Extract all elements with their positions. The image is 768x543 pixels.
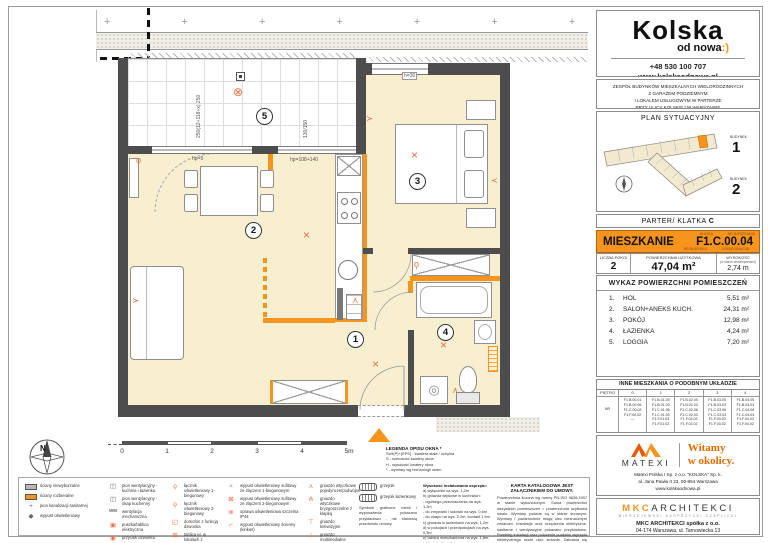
room-number-salon: 2 bbox=[245, 222, 262, 239]
room-no: 4. bbox=[609, 329, 623, 336]
legend-item: ϙłącznik oświetleniowy 1-biegunowy bbox=[169, 483, 221, 498]
unit-tag: KLATKA bbox=[700, 232, 713, 236]
chair bbox=[260, 194, 274, 212]
room-area-row: 1.HOL5,51 m² bbox=[597, 291, 759, 302]
brand-box: Kolska od nowa:) +48 530 100 707 www.kol… bbox=[596, 10, 760, 77]
scale-tick-label: 0 bbox=[120, 448, 124, 455]
ceiling-outlet-icon: × bbox=[440, 339, 447, 351]
legend-item: ϙłącznik oświetleniowy 2-biegunowy bbox=[169, 501, 221, 516]
vent-hood-icon: ◫ bbox=[107, 496, 119, 503]
room-number-label: 4 bbox=[443, 327, 448, 338]
unit-codes: F1.B.00.01 F1.B.00.06 F1.C.00.03 F1.F.00… bbox=[619, 397, 646, 422]
legend-column-radiators: grzejnik grzejnik łazienkowy Symbole gra… bbox=[359, 483, 417, 526]
mkc-address: 04-174 Warszawa, ul. Tarnowiecka 13 bbox=[597, 528, 759, 535]
kitchen-stove bbox=[337, 192, 361, 224]
intercom-icon: ◱ bbox=[169, 519, 181, 526]
scale-segment bbox=[302, 441, 347, 445]
divider bbox=[679, 443, 680, 467]
toilet-tank bbox=[456, 392, 480, 404]
project-description: ZESPÓŁ BUDYNKÓW MIESZKALNYCH WIELORODZIN… bbox=[597, 80, 759, 109]
dining-table bbox=[200, 166, 258, 216]
legend-label: pion wentylacyjny - okap kuchenny bbox=[122, 496, 165, 506]
legend-label: pion wentylacyjny - kuchnia i łazienka bbox=[122, 483, 165, 493]
smile-icon: :) bbox=[722, 42, 729, 54]
mkc-logo-architekci: ARCHITEKCI bbox=[651, 503, 734, 514]
room-area: 12,98 m² bbox=[723, 318, 749, 325]
compass-north-label: N bbox=[40, 444, 46, 453]
room-number-label: 3 bbox=[415, 176, 420, 187]
hall-wardrobe bbox=[270, 380, 348, 404]
legend-item: ⊞tablica el. w lokalach z gniazdem bbox=[169, 532, 221, 543]
legend-item: +pion kanalizacji sanitarnej bbox=[25, 503, 101, 510]
ceiling-outlet-2p-icon: ⊠ bbox=[225, 496, 237, 503]
legend-label: ściany rozbieralne bbox=[40, 493, 74, 498]
legend-item: ◱domofon z funkcją dzwonka bbox=[169, 519, 221, 529]
kolska-logo-subtitle: od nowa:) bbox=[597, 43, 759, 54]
room-number-label: 5 bbox=[262, 111, 267, 122]
floor-bar: PARTER/ KLATKA C bbox=[596, 214, 760, 228]
scale-segment bbox=[108, 441, 122, 445]
window-legend-lines: SxH(P)+(EPS) - kwatera stała / uchylna S… bbox=[386, 451, 496, 472]
unit-codes: F1.B.03.05 F1.B.03.03 F1.C.03.06 F1.C.03… bbox=[704, 397, 731, 427]
room-no: 1. bbox=[609, 296, 623, 303]
floor-header: PIĘTRO bbox=[597, 390, 618, 397]
sealed-lamp-icon: ⊗ bbox=[233, 86, 243, 98]
wall-pier bbox=[252, 146, 278, 154]
stat-rooms: LICZBA POKOI 2 bbox=[597, 254, 631, 273]
legend-column-sockets: ⋏gniazdo wtyczkowe pojedyncze/podwójne ⋔… bbox=[305, 483, 353, 543]
legend-label: grzejnik bbox=[380, 483, 394, 488]
legend-label: gniazdo multimedialne bbox=[320, 532, 353, 542]
chair bbox=[184, 194, 198, 212]
room-no: 2. bbox=[609, 307, 623, 314]
similar-col: 2 F1.B.02.05 F1.B.02.03 F1.C.02.06 F1.C.… bbox=[675, 390, 703, 433]
wall-swatch-orange-icon bbox=[25, 494, 37, 500]
matexi-name: MATEXI bbox=[622, 458, 671, 468]
legend-item: ⊗oprawa oświetleniowa szczelna IP44 bbox=[225, 509, 299, 519]
splash-socket-icon: ⋔ bbox=[305, 496, 317, 503]
room-area-row: 2.SALON+ANEKS KUCH.24,31 m² bbox=[597, 302, 759, 313]
vent-riser-icon: ◫ bbox=[107, 483, 119, 490]
floor-header: 3 bbox=[704, 390, 731, 397]
chair bbox=[184, 170, 198, 188]
unit-codes: F1.B.01.05 F1.B.01.03 F1.C.01.06 F1.C.01… bbox=[647, 397, 674, 427]
legend-item: ◫pion wentylacyjny - kuchnia i łazienka bbox=[107, 483, 165, 493]
room-area: 24,31 m² bbox=[723, 307, 749, 314]
socket-icon: ⋏ bbox=[131, 297, 140, 304]
legend-label: pion kanalizacji sanitarnej bbox=[40, 503, 88, 508]
legend-item: ⊥gniazdo multimedialne bbox=[305, 532, 353, 542]
scale-tick-label: 2 bbox=[210, 448, 214, 455]
light-switch-icon: ϙ bbox=[414, 260, 419, 269]
legend-column-vents: ◫pion wentylacyjny - kuchnia i łazienka … bbox=[107, 483, 165, 543]
radiator-bathroom bbox=[488, 346, 498, 372]
switch-2pole-icon: ϙ bbox=[169, 501, 181, 508]
scale-tick-label: 3 bbox=[255, 448, 259, 455]
window-code-legend: LEGENDA OPISU OKNA * SxH(P)+(EPS) - kwat… bbox=[386, 446, 496, 472]
legend-item: grzejnik łazienkowy bbox=[359, 494, 417, 502]
wall-lamp-icon: ⌐ bbox=[225, 522, 237, 529]
unit-stats: LICZBA POKOI 2 POWIERZCHNIA UŻYTKOWA 47,… bbox=[596, 253, 760, 274]
room-number-loggia: 5 bbox=[256, 108, 273, 125]
tv-socket-icon: ⊤ bbox=[305, 519, 317, 526]
legend-item: ⊤gniazdo telewizyjne bbox=[305, 519, 353, 529]
window-bedroom bbox=[372, 63, 428, 75]
legend-label: wypust oświetleniowy ścienny (kinkiet) bbox=[240, 522, 299, 532]
floor-label: PARTER/ KLATKA bbox=[642, 218, 707, 225]
witamy-tagline: Witamy w okolicy. bbox=[688, 442, 734, 466]
ceiling-outlet-icon: × bbox=[303, 229, 310, 241]
wall-bath-left bbox=[408, 330, 414, 405]
legend-column-switches: ϙłącznik oświetleniowy 1-biegunowy ϙłącz… bbox=[169, 483, 221, 543]
budynek2-number: 2 bbox=[732, 181, 740, 198]
legend-label: wypust oświetleniowy sufitowy ze złączem… bbox=[240, 496, 299, 506]
switch-1pole-icon: ϙ bbox=[169, 483, 181, 490]
mkc-box: MKCARCHITEKCI MIERZEJEWSKI KASPRZYCKI CZ… bbox=[596, 498, 760, 535]
scale-bar: 0 1 2 3 4 5m bbox=[108, 441, 368, 459]
ceiling-outlet-1p-icon: × bbox=[225, 483, 237, 490]
exterior-paving bbox=[436, 417, 540, 432]
scale-tick-label: 1 bbox=[165, 448, 169, 455]
wall-left bbox=[118, 58, 128, 417]
room-area: 5,51 m² bbox=[727, 296, 749, 303]
room-area: 7,20 m² bbox=[727, 340, 749, 347]
legend-column-walls: ściany niewyburzalne ściany rozbieralne … bbox=[25, 483, 101, 523]
wall-swatch-gray-icon bbox=[25, 484, 37, 490]
similar-col-label: PIĘTRO NR bbox=[597, 390, 619, 433]
furniture-disclaimer: Symbole graficzne mebli i wyposażenia po… bbox=[359, 505, 417, 526]
legend-item: ⊠wypust oświetleniowy sufitowy ze złącze… bbox=[225, 496, 299, 506]
wall-loggia-right bbox=[356, 58, 366, 154]
scale-segment bbox=[122, 441, 167, 445]
window-sill-label: hp=108+140 bbox=[290, 157, 318, 163]
light-outlet-icon: ◆ bbox=[25, 513, 37, 520]
wall-bedroom-bottom bbox=[363, 248, 373, 254]
legend-item: ⋏gniazdo wtyczkowe pojedyncze/podwójne bbox=[305, 483, 353, 493]
kitchen-sink bbox=[337, 156, 361, 176]
legend-label: ściany niewyburzalne bbox=[40, 483, 80, 488]
room-number-label: 2 bbox=[251, 225, 256, 236]
legend-label: grzejnik łazienkowy bbox=[380, 494, 416, 499]
wall-hol-dashed-orange bbox=[263, 258, 267, 318]
panel-socket-icon: ⊞ bbox=[169, 532, 181, 539]
site-plan-title: PLAN SYTUACYJNY bbox=[597, 112, 759, 122]
pillow bbox=[464, 130, 484, 158]
room-areas-box: WYKAZ POWIERZCHNI POMIESZCZEŃ 1.HOL5,51 … bbox=[596, 275, 760, 377]
matexi-box: MATEXI Witamy w okolicy. Matexi Polska I… bbox=[596, 435, 760, 496]
legend-item: ⋔gniazdo wtyczkowe bryzgoszczelne z klap… bbox=[305, 496, 353, 516]
floor-plan: + + + + + + + + + + + + bbox=[0, 0, 596, 543]
legend-label: łącznik oświetleniowy 2-biegunowy bbox=[184, 501, 221, 516]
room-number-hol: 1 bbox=[347, 331, 364, 348]
legend-label: przycisk dzwonka bbox=[122, 535, 155, 540]
window-salon-small bbox=[278, 146, 356, 154]
legend-item: ściany niewyburzalne bbox=[25, 483, 101, 490]
ip44-lamp-icon: ⊗ bbox=[225, 509, 237, 516]
ceiling-outlet-icon: × bbox=[372, 358, 379, 370]
window-height-label: h=30 bbox=[402, 72, 417, 80]
legend-item: ◉przycisk dzwonka bbox=[107, 535, 165, 542]
legend-label: domofon z funkcją dzwonka bbox=[184, 519, 221, 529]
stove-burner-icon bbox=[341, 212, 348, 219]
budynek1-number: 1 bbox=[732, 139, 740, 156]
electric-box-icon: ▣ bbox=[107, 522, 119, 529]
unit-header: MIESZKANIE F1.C.00.04 KLATKA NR MIESZKAN… bbox=[596, 230, 760, 253]
room-areas-title: WYKAZ POWIERZCHNI POMIESZCZEŃ bbox=[597, 276, 759, 291]
window-sill-label: hp=5 bbox=[192, 156, 203, 162]
light-switch-icon: ϙ bbox=[136, 156, 141, 165]
chair bbox=[260, 170, 274, 188]
kitchen-basin bbox=[338, 260, 358, 280]
stat-height: WYSOKOŚĆ (w stanie deweloperskim) 2,74 m bbox=[717, 254, 759, 273]
window-salon-large bbox=[152, 146, 252, 154]
socket-icon: ⋏ bbox=[452, 386, 459, 395]
divider bbox=[611, 58, 745, 59]
bedroom-wardrobe bbox=[412, 254, 490, 276]
project-description-box: ZESPÓŁ BUDYNKÓW MIESZKALNYCH WIELORODZIN… bbox=[596, 79, 760, 109]
unit-codes: F1.B.02.05 F1.B.02.03 F1.C.02.06 F1.C.02… bbox=[675, 397, 702, 427]
nightstand bbox=[466, 208, 496, 228]
legend-label: tablica el. w lokalach z gniazdem bbox=[184, 532, 221, 543]
bathroom-sink-basin bbox=[478, 324, 492, 340]
heights-lines: a) wyłączniki na wys. 1,2m b) gniazda wt… bbox=[423, 488, 491, 543]
site-plan-box: PLAN SYTUACYJNY BUDYNEK 1 BUDYNEK 2 bbox=[596, 111, 760, 212]
multimedia-socket-icon: ⊥ bbox=[305, 532, 317, 539]
wall-hol-orange bbox=[263, 318, 335, 323]
floor-header: 1 bbox=[647, 390, 674, 397]
matexi-m-icon bbox=[629, 441, 663, 457]
wall-bath-left-orange bbox=[408, 281, 413, 293]
bathtub-inner bbox=[420, 286, 488, 314]
stove-burner-icon bbox=[341, 198, 348, 205]
legend-column-outlets: ×wypust oświetleniowy sufitowy ze złącze… bbox=[225, 483, 299, 535]
unit-label: MIESZKANIE bbox=[603, 236, 674, 248]
entrance-door-gap bbox=[358, 405, 404, 417]
floor-header: 2 bbox=[675, 390, 702, 397]
room-name: SALON+ANEKS KUCH. bbox=[623, 307, 723, 314]
socket-icon: ⋏ bbox=[352, 296, 359, 305]
mkc-logo: MKC bbox=[622, 503, 651, 514]
room-number-pokoj: 3 bbox=[409, 173, 426, 190]
scale-segment bbox=[257, 441, 302, 445]
scale-tick-label: 5m bbox=[344, 448, 353, 455]
stove-burner-icon bbox=[351, 212, 358, 219]
terrain-grass-band: + + + + + + + + + + + + bbox=[96, 12, 588, 33]
socket-icon: ⋏ bbox=[490, 177, 499, 184]
phone-number: +48 530 100 707 bbox=[597, 62, 759, 72]
site-plan-map: BUDYNEK 1 BUDYNEK 2 bbox=[598, 122, 758, 208]
room-no: 5. bbox=[609, 340, 623, 347]
unit-code: F1.C.00.04 bbox=[696, 236, 753, 248]
wall-bottom bbox=[118, 405, 510, 417]
terrain-gravel-band bbox=[96, 33, 588, 50]
kolska-logo: Kolska bbox=[597, 17, 759, 43]
similar-col: 1 F1.B.01.05 F1.B.01.03 F1.C.01.06 F1.C.… bbox=[647, 390, 675, 433]
dimension-label: 250(12+118+x) 250 bbox=[196, 95, 202, 138]
power-socket-icon: ⋏ bbox=[305, 483, 317, 490]
unit-tag: NR BUDYNKU bbox=[684, 247, 707, 251]
wall-kitchen-orange bbox=[363, 154, 367, 322]
dimension-label: 130/150 bbox=[303, 120, 309, 138]
matexi-logo: MATEXI bbox=[622, 441, 671, 468]
scale-segment bbox=[212, 441, 257, 445]
legend-label: wentylacja mechaniczna bbox=[122, 509, 165, 519]
legend-item: ściany rozbieralne bbox=[25, 493, 101, 500]
scale-tick-label: 4 bbox=[300, 448, 304, 455]
similar-col: 4 F1.B.04.05 F1.B.04.03 F1.C.04.06 F1.C.… bbox=[732, 390, 759, 433]
wall-bath-top-orange bbox=[410, 276, 500, 281]
install-heights-note: Wysokość instalowania osprzętu: a) wyłąc… bbox=[423, 483, 491, 543]
legend-strip: ściany niewyburzalne ściany rozbieralne … bbox=[18, 477, 590, 536]
floor-header: 4 bbox=[732, 390, 759, 397]
legend-label: gniazdo wtyczkowe pojedyncze/podwójne bbox=[320, 483, 360, 493]
compass-rose: N bbox=[30, 440, 64, 474]
catalog-card-note: KARTA KATALOGOWA JEST ZAŁĄCZNIKIEM DO UM… bbox=[497, 483, 587, 543]
legend-item: WMwentylacja mechaniczna bbox=[107, 509, 165, 519]
toilet-bowl bbox=[459, 366, 477, 393]
room-number-label: 1 bbox=[353, 334, 358, 345]
stat-area: POWIERZCHNIA UŻYTKOWA 47,04 m² bbox=[631, 254, 717, 273]
room-area-row: 4.ŁAZIENKA4,24 m² bbox=[597, 324, 759, 335]
legend-label: gniazdo telewizyjne bbox=[320, 519, 353, 529]
room-name: LOGGIA bbox=[623, 340, 727, 347]
entrance-arrow-icon bbox=[368, 428, 390, 442]
kitchen-tall-unit bbox=[337, 288, 343, 320]
mkc-company: MKC ARCHITEKCI spółka z o.o. bbox=[597, 520, 759, 528]
legend-item: grzejnik bbox=[359, 483, 417, 491]
similar-units-title: INNE MIESZKANIA O PODOBNYM UKŁADZIE bbox=[597, 380, 759, 390]
room-no: 3. bbox=[609, 318, 623, 325]
stat-value: 2 bbox=[598, 261, 629, 272]
sofa bbox=[130, 266, 184, 360]
similar-units-box: INNE MIESZKANIA O PODOBNYM UKŁADZIE PIĘT… bbox=[596, 379, 760, 433]
boundary-dashed-line bbox=[147, 8, 150, 59]
room-name: ŁAZIENKA bbox=[623, 329, 727, 336]
legend-item: ◫pion wentylacyjny - okap kuchenny bbox=[107, 496, 165, 506]
floor-header: 0 bbox=[619, 390, 646, 397]
staircase-letter: C bbox=[709, 218, 715, 225]
legend-item: ×wypust oświetleniowy sufitowy ze złącze… bbox=[225, 483, 299, 493]
pillow bbox=[464, 170, 484, 198]
mkc-subtitle: MIERZEJEWSKI KASPRZYCKI CZAPLICKI bbox=[597, 514, 759, 518]
unit-tag: NR MIESZKANIA bbox=[728, 232, 755, 236]
unit-tag: KONDYGNACJA bbox=[723, 247, 749, 251]
legend-label: łącznik oświetleniowy 1-biegunowy bbox=[184, 483, 221, 498]
karta-text: Powierzchnia liczona wg normy PN-ISO 983… bbox=[497, 495, 587, 543]
nr-row-label: NR bbox=[597, 397, 618, 412]
room-area: 4,24 m² bbox=[727, 329, 749, 336]
socket-icon: ⋏ bbox=[365, 115, 374, 122]
ceiling-fixture-icon bbox=[236, 72, 245, 81]
legend-item: ⌐wypust oświetleniowy ścienny (kinkiet) bbox=[225, 522, 299, 532]
ceiling-outlet-icon: × bbox=[411, 149, 418, 161]
scale-segment bbox=[167, 441, 212, 445]
unit-codes: F1.B.04.05 F1.B.04.03 F1.C.04.06 F1.C.04… bbox=[732, 397, 759, 427]
radiator-icon bbox=[359, 483, 377, 491]
legend-label: oprawa oświetleniowa szczelna IP44 bbox=[240, 509, 299, 519]
room-area-row: 3.POKÓJ12,98 m² bbox=[597, 313, 759, 324]
wall-right bbox=[500, 63, 510, 417]
karta-title: KARTA KATALOGOWA JEST ZAŁĄCZNIKIEM DO UM… bbox=[497, 483, 587, 493]
legend-label: gniazdo wtyczkowe bryzgoszczelne z klapk… bbox=[320, 496, 353, 516]
matexi-address: Matexi Polska I Sp. z o.o. "KOLSKA" Sp. … bbox=[597, 472, 759, 493]
similar-col: 3 F1.B.03.05 F1.B.03.03 F1.C.03.06 F1.C.… bbox=[704, 390, 732, 433]
stat-value: 47,04 m² bbox=[632, 261, 715, 273]
legend-label: wypust oświetleniowy sufitowy ze złączem… bbox=[240, 483, 299, 493]
nightstand bbox=[466, 100, 496, 120]
similar-col: 0 F1.B.00.01 F1.B.00.06 F1.C.00.03 F1.F.… bbox=[619, 390, 647, 433]
bathroom-radiator-icon bbox=[359, 494, 377, 502]
top-wall-hatch bbox=[366, 57, 588, 62]
room-name: POKÓJ bbox=[623, 318, 723, 325]
stat-value: 2,74 m bbox=[718, 265, 758, 272]
legend-label: wypust oświetleniowy bbox=[40, 513, 80, 518]
legend-item: ◆wypust oświetleniowy bbox=[25, 513, 101, 520]
washing-machine: ◎ bbox=[420, 376, 448, 404]
doorbell-button-icon: ◉ bbox=[107, 535, 119, 542]
website-link[interactable]: www.kolskaodnowa.pl bbox=[597, 72, 759, 77]
room-area-row: 5.LOGGIA7,20 m² bbox=[597, 335, 759, 346]
stove-burner-icon bbox=[351, 198, 358, 205]
wall-pier bbox=[128, 146, 152, 154]
od-nowa-text: od nowa bbox=[677, 42, 722, 54]
legend-label: puszka/tablica elektryczna bbox=[122, 522, 165, 532]
sewage-riser-icon: + bbox=[25, 503, 37, 510]
room-name: HOL bbox=[623, 296, 727, 303]
mech-vent-icon: WM bbox=[107, 509, 119, 514]
legend-item: ▣puszka/tablica elektryczna bbox=[107, 522, 165, 532]
